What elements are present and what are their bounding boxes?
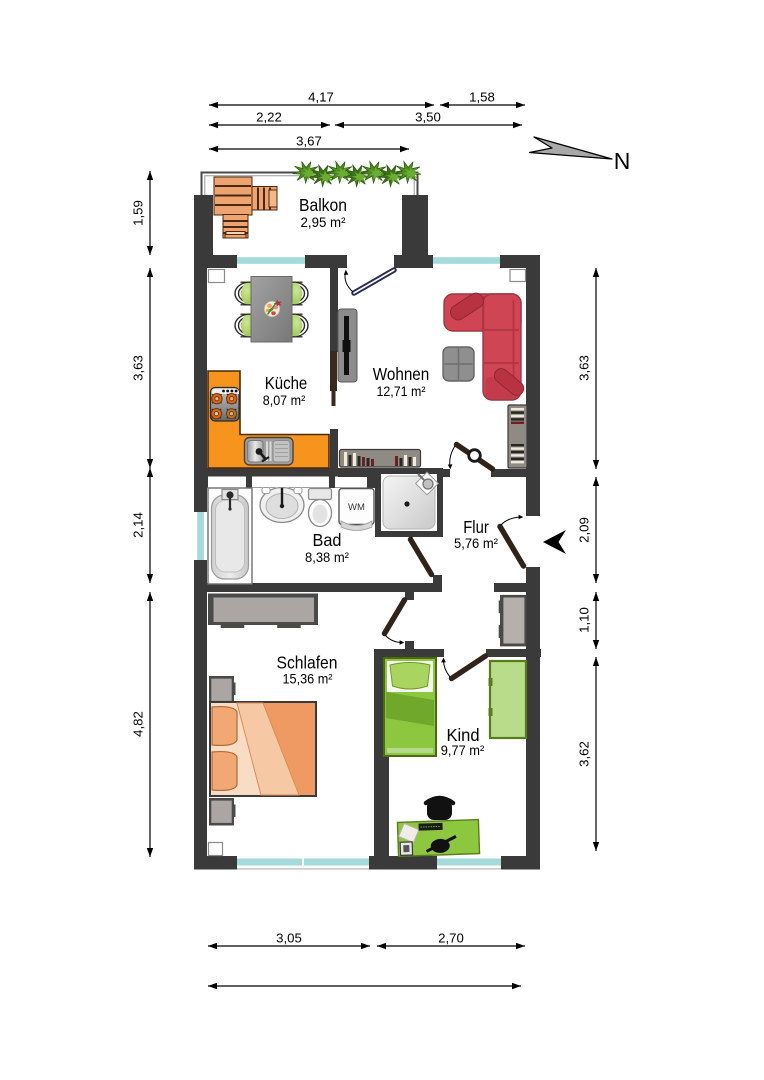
svg-text:Kind: Kind xyxy=(447,725,480,745)
svg-text:Bad: Bad xyxy=(313,530,342,550)
svg-text:2,95 m²: 2,95 m² xyxy=(301,215,346,230)
svg-text:3,67: 3,67 xyxy=(296,134,322,149)
svg-text:2,70: 2,70 xyxy=(438,931,464,946)
svg-text:Flur: Flur xyxy=(463,517,489,537)
svg-text:8,07 m²: 8,07 m² xyxy=(263,393,306,408)
svg-text:3,05: 3,05 xyxy=(276,931,302,946)
svg-text:Balkon: Balkon xyxy=(299,195,347,215)
svg-text:Wohnen: Wohnen xyxy=(373,364,430,384)
svg-text:3,63: 3,63 xyxy=(577,355,592,381)
svg-text:3,63: 3,63 xyxy=(131,355,146,381)
svg-text:2,22: 2,22 xyxy=(256,110,282,125)
svg-text:15,36 m²: 15,36 m² xyxy=(283,672,333,687)
svg-text:2,09: 2,09 xyxy=(577,517,592,543)
svg-text:Küche: Küche xyxy=(265,373,308,393)
svg-text:9,77 m²: 9,77 m² xyxy=(441,743,485,758)
svg-text:1,59: 1,59 xyxy=(131,200,146,226)
svg-text:4,17: 4,17 xyxy=(308,90,334,105)
svg-text:1,10: 1,10 xyxy=(577,607,592,633)
svg-text:2,14: 2,14 xyxy=(131,512,146,538)
svg-text:3,50: 3,50 xyxy=(415,110,441,125)
svg-text:4,82: 4,82 xyxy=(131,711,146,737)
svg-text:5,76 m²: 5,76 m² xyxy=(454,536,498,551)
svg-text:WM: WM xyxy=(348,502,365,513)
svg-text:8,38 m²: 8,38 m² xyxy=(305,550,349,565)
svg-text:1,58: 1,58 xyxy=(469,90,495,105)
svg-text:12,71 m²: 12,71 m² xyxy=(377,384,426,399)
svg-text:Schlafen: Schlafen xyxy=(277,653,338,673)
svg-text:3,62: 3,62 xyxy=(577,741,592,767)
svg-text:N: N xyxy=(614,148,631,174)
